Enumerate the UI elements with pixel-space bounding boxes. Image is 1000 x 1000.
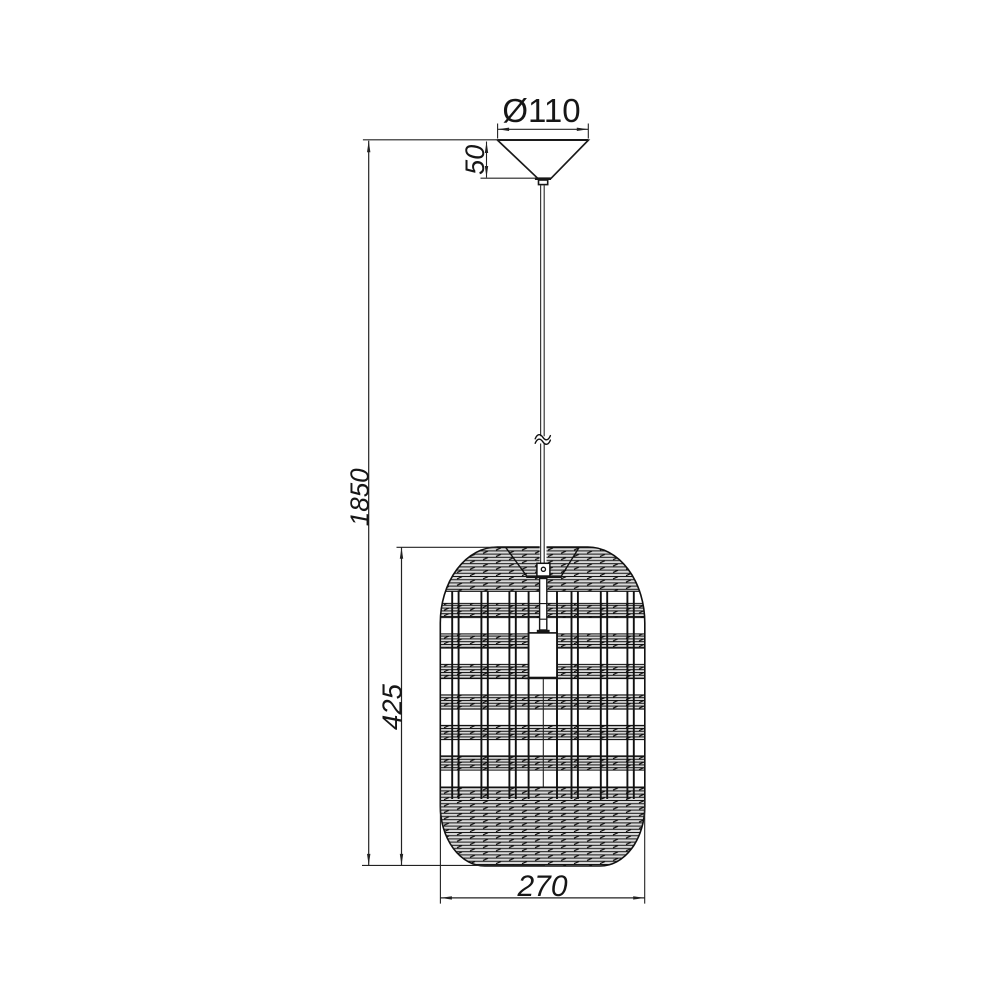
svg-text:270: 270 — [516, 870, 567, 903]
svg-text:1850: 1850 — [345, 468, 375, 526]
svg-text:425: 425 — [377, 683, 408, 730]
svg-text:Ø110: Ø110 — [502, 92, 580, 129]
